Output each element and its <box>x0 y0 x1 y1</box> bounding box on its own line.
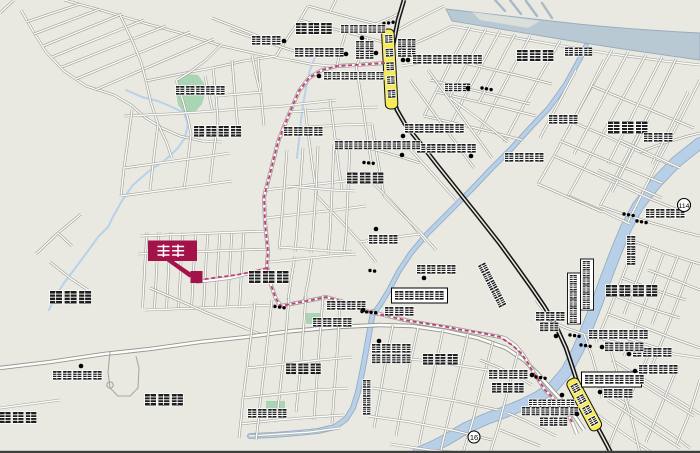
svg-text:16: 16 <box>470 433 478 442</box>
svg-text:114: 114 <box>679 203 690 210</box>
